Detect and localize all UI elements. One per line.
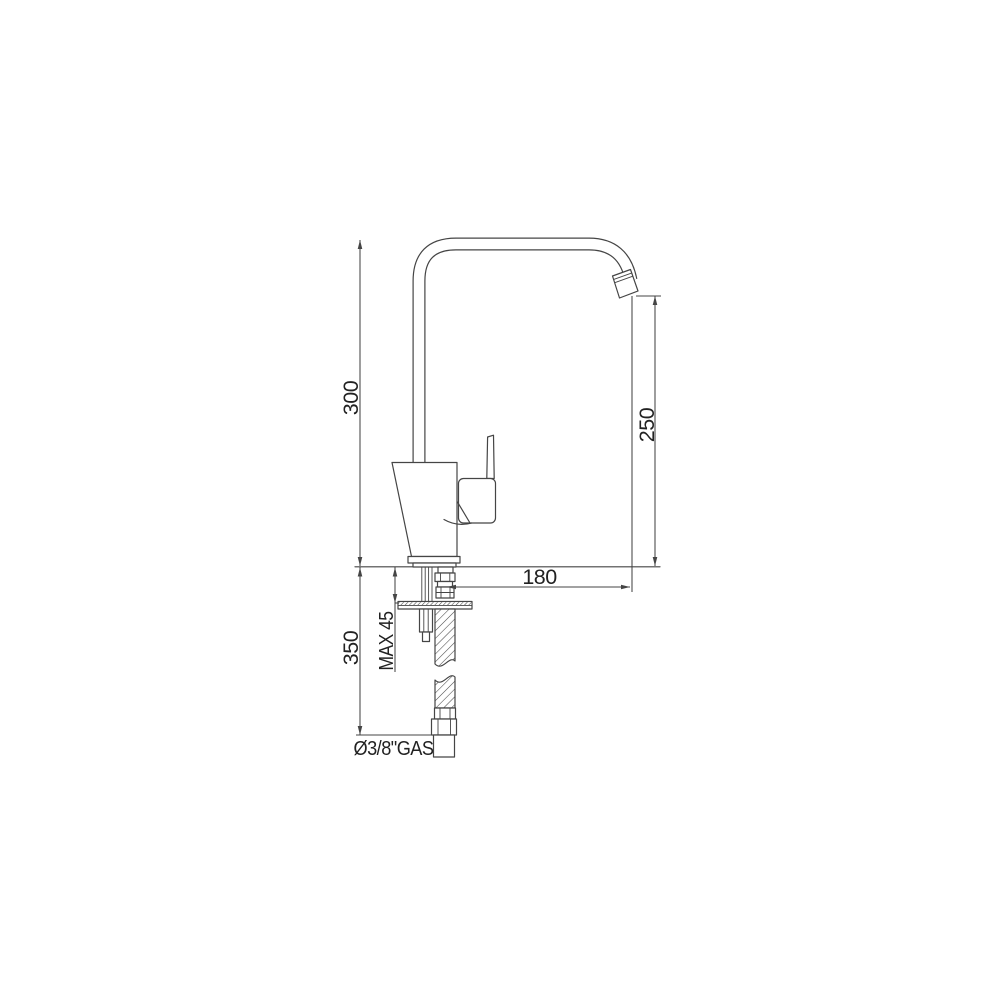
faucet-dimension-drawing: 300 350 250 bbox=[0, 0, 1000, 1000]
mounting-washer bbox=[398, 602, 472, 610]
supply-hose bbox=[435, 609, 455, 708]
dim-max45-label: MAX 45 bbox=[375, 611, 398, 670]
drawing-canvas: 300 350 250 bbox=[0, 0, 1000, 1000]
gas-connection-label: Ø3/8"GAS bbox=[354, 737, 434, 760]
supply-hose-upper bbox=[435, 609, 455, 666]
mounting-studs bbox=[422, 567, 432, 602]
spout-tube bbox=[419, 244, 631, 465]
hose-ferrule bbox=[435, 708, 456, 719]
dim-180: 180 bbox=[447, 296, 632, 592]
faucet-figure bbox=[355, 244, 660, 757]
shank-fitting bbox=[435, 567, 455, 598]
dim-250-label: 250 bbox=[635, 407, 659, 442]
hose-end-fitting bbox=[432, 708, 457, 757]
dim-250: 250 bbox=[635, 296, 661, 566]
dim-180-label: 180 bbox=[522, 565, 557, 589]
faucet-body bbox=[392, 463, 457, 557]
supply-hose-lower bbox=[435, 676, 455, 708]
dimensions: 300 350 250 bbox=[339, 240, 661, 760]
dim-max45: MAX 45 bbox=[375, 567, 399, 672]
stud-nut bbox=[420, 609, 433, 642]
dim-350-label: 350 bbox=[339, 630, 363, 665]
label-gas-connection: Ø3/8"GAS bbox=[354, 737, 434, 760]
hose-connector-body bbox=[434, 735, 455, 757]
handle-lever bbox=[487, 435, 494, 478]
hose-nut bbox=[432, 719, 457, 735]
dim-300-label: 300 bbox=[339, 380, 363, 415]
base-flange bbox=[408, 557, 460, 568]
dim-300: 300 bbox=[339, 240, 363, 566]
